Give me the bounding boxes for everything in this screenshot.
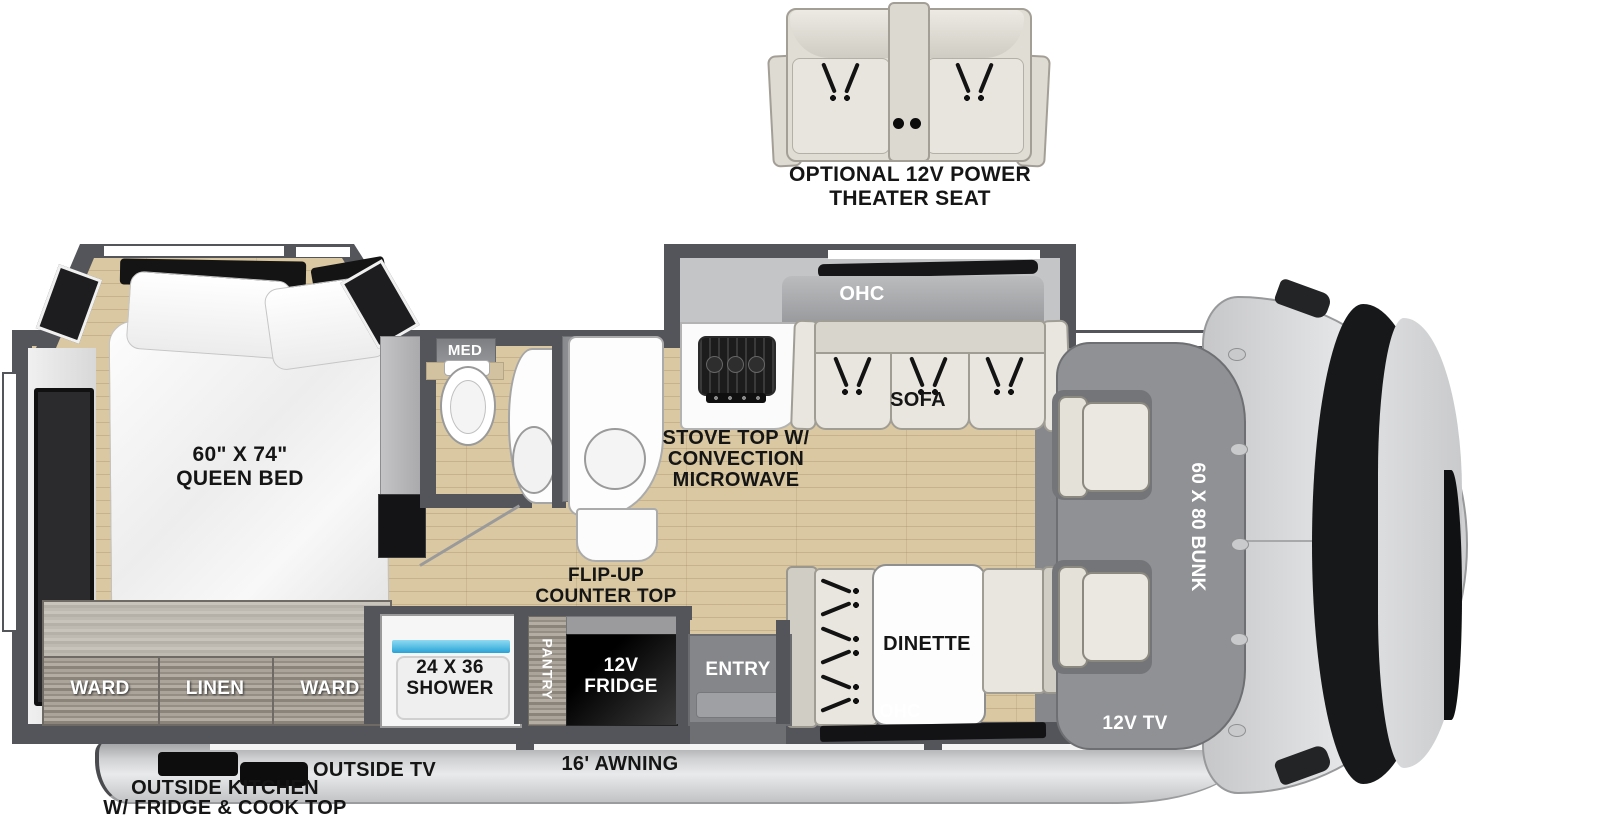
flip-up-label-line1: FLIP-UP bbox=[506, 566, 706, 586]
bathroom-wall-left bbox=[420, 330, 436, 508]
shower-wall-left bbox=[364, 606, 380, 724]
flip-up-label-line2: COUNTER TOP bbox=[506, 587, 706, 607]
toilet-bowl-inner bbox=[450, 380, 486, 434]
bunk-rivet bbox=[1230, 443, 1248, 456]
trim-strip-break bbox=[924, 744, 942, 750]
theater-seat-label-line1: OPTIONAL 12V POWER bbox=[770, 164, 1050, 186]
theater-seat-option: OPTIONAL 12V POWER THEATER SEAT bbox=[770, 0, 1050, 215]
storage-compartment-door bbox=[158, 752, 238, 776]
seat-stitch-mark bbox=[818, 62, 862, 102]
flip-up-counter bbox=[576, 508, 658, 562]
slide-top-trim bbox=[828, 250, 1040, 259]
queen-bed-label-line1: 60" X 74" bbox=[140, 444, 340, 466]
dinette-ohc-label: OHC bbox=[870, 702, 930, 721]
entry-label: ENTRY bbox=[688, 660, 788, 680]
stove-label-line3: MICROWAVE bbox=[636, 470, 836, 491]
fridge-label-line1: 12V bbox=[566, 656, 676, 676]
stove-label-line2: CONVECTION bbox=[636, 449, 836, 470]
bunk-rivet bbox=[1231, 538, 1249, 551]
queen-bed-label-line2: QUEEN BED bbox=[140, 468, 340, 490]
passenger-seat-cushion bbox=[1082, 572, 1150, 662]
stove-knob-strip bbox=[706, 393, 766, 403]
rv-floorplan-diagram: OUTSIDE TV OUTSIDE KITCHEN W/ FRIDGE & C… bbox=[0, 0, 1600, 834]
slide-top-trim bbox=[104, 246, 284, 256]
cupholder bbox=[910, 118, 921, 129]
shower-glass bbox=[392, 640, 510, 653]
seat-stitch-mark bbox=[820, 672, 860, 716]
bedroom-tv bbox=[378, 494, 426, 558]
theater-center-console bbox=[888, 2, 930, 162]
driver-seat-cushion bbox=[1082, 402, 1150, 492]
entry-step bbox=[696, 692, 782, 718]
stove-label-line1: STOVE TOP W/ bbox=[636, 428, 836, 449]
bunk-rivet bbox=[1230, 633, 1248, 646]
outside-kitchen-label-line1: OUTSIDE KITCHEN bbox=[120, 778, 330, 799]
fridge-label-line2: FRIDGE bbox=[566, 677, 676, 697]
pantry-label: PANTRY bbox=[540, 609, 555, 729]
entry-wall-right bbox=[776, 620, 790, 724]
dinette-label: DINETTE bbox=[872, 634, 982, 655]
cupholder bbox=[893, 118, 904, 129]
outside-tv-label: OUTSIDE TV bbox=[312, 760, 437, 781]
bathroom-sink bbox=[512, 426, 556, 494]
theater-seat-label-line2: THEATER SEAT bbox=[770, 188, 1050, 210]
shower-label-line2: SHOWER bbox=[382, 679, 518, 699]
entry-threshold bbox=[690, 722, 786, 744]
seat-stitch-mark bbox=[820, 624, 860, 668]
rear-window bbox=[2, 372, 18, 632]
cab-tv-label: 12V TV bbox=[1080, 714, 1190, 734]
stove-burner bbox=[748, 356, 765, 373]
ward-left-label: WARD bbox=[42, 679, 158, 699]
linen-label: LINEN bbox=[158, 679, 272, 699]
dinette-bench-right bbox=[982, 568, 1046, 694]
trim-strip-break bbox=[516, 744, 534, 750]
seat-stitch-mark bbox=[952, 62, 996, 102]
bunk-rivet bbox=[1228, 348, 1246, 361]
fridge-top-cap bbox=[566, 616, 678, 636]
outside-kitchen-label-line2: W/ FRIDGE & COOK TOP bbox=[95, 798, 355, 819]
sofa-label: SOFA bbox=[858, 390, 978, 411]
bunk-rivet bbox=[1228, 724, 1246, 737]
wardrobe-row-top bbox=[42, 600, 392, 662]
stove-burner bbox=[727, 356, 744, 373]
shower-label-line1: 24 X 36 bbox=[382, 658, 518, 678]
bunk-label: 60 X 80 BUNK bbox=[1187, 452, 1207, 602]
seat-stitch-mark bbox=[820, 576, 860, 620]
med-cabinet-label: MED bbox=[436, 343, 494, 359]
slide-top-trim bbox=[296, 247, 350, 257]
sofa-ohc-label: OHC bbox=[822, 284, 902, 305]
awning-label: 16' AWNING bbox=[540, 754, 700, 775]
seat-stitch-mark bbox=[982, 356, 1026, 396]
stove-burner bbox=[706, 356, 723, 373]
